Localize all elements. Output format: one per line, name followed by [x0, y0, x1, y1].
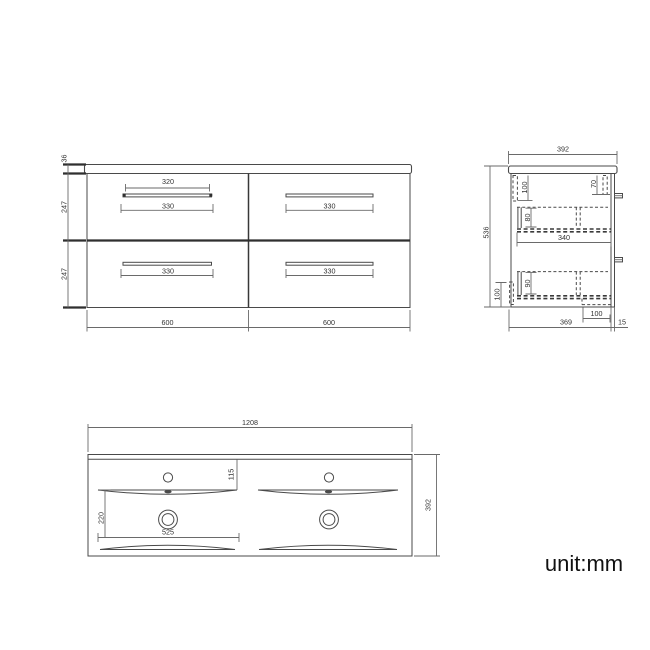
dim-label: 330 — [324, 267, 336, 276]
dim-label: 330 — [162, 267, 174, 276]
dim-basin-front-depth-220: 220 — [97, 490, 111, 538]
dim-label-row2-height: 247 — [60, 268, 69, 280]
dim-handle-330-top-right: 330 — [286, 201, 373, 213]
basin-countertop-outline — [88, 455, 412, 557]
dim-bottom-front-inset-100: 100 — [493, 283, 512, 308]
dim-label: 330 — [162, 201, 174, 210]
dim-handle-330-bottom-left: 330 — [121, 267, 213, 279]
dim-label: 90 — [523, 280, 532, 288]
dim-label: 70 — [589, 180, 598, 188]
basin-top-view: 1208 392 115 — [88, 418, 440, 556]
dim-handle-330-bottom-right: 330 — [286, 267, 373, 279]
dim-label-row1-height: 247 — [60, 201, 69, 213]
dim-label-counter-thickness: 36 — [60, 155, 69, 163]
countertop-side — [509, 166, 618, 174]
tap-hole-right — [324, 473, 333, 482]
tap-hole-left — [163, 473, 172, 482]
dim-tap-to-basin-115: 115 — [227, 459, 238, 490]
dim-label-width-left: 600 — [162, 318, 174, 327]
dim-bottom-widths: 600 600 — [87, 310, 410, 332]
countertop-front — [85, 165, 412, 174]
front-view: 320 330 330 330 330 36 — [60, 155, 412, 332]
dim-label: 1208 — [242, 418, 258, 427]
dim-label-depth: 392 — [557, 145, 569, 154]
dim-label: 115 — [227, 469, 236, 480]
dim-left-heights: 36 247 247 — [60, 155, 87, 308]
dim-label: 100 — [493, 289, 502, 301]
dim-label: 392 — [424, 499, 433, 511]
dim-end-marker — [123, 194, 126, 197]
basin-front-curve-right — [259, 545, 397, 549]
dim-back-recess-100: 100 — [583, 308, 610, 323]
hidden-back-strip-top — [603, 176, 607, 195]
unit-label: unit:mm — [545, 551, 623, 576]
dim-height-536: 536 — [482, 166, 511, 307]
overflow-slot-right — [325, 490, 332, 493]
overflow-slot-left — [164, 490, 171, 493]
dim-total-width-1208: 1208 — [88, 418, 412, 452]
dim-label-width-right: 600 — [323, 318, 335, 327]
dim-label: 330 — [324, 201, 336, 210]
dim-label-body-depth: 369 — [560, 318, 572, 327]
dim-label-rail: 15 — [618, 318, 626, 327]
dim-low-drawer-depth-90: 90 — [523, 273, 537, 294]
wall-bracket-lower — [615, 258, 623, 262]
side-view: 392 536 100 70 — [482, 145, 629, 332]
dim-end-marker — [209, 194, 212, 197]
drain-right — [320, 510, 339, 529]
technical-drawing-page: 320 330 330 330 330 36 — [0, 0, 650, 650]
dim-label: 80 — [523, 214, 532, 222]
dim-label: 340 — [558, 233, 570, 242]
dim-label: 320 — [162, 177, 174, 186]
dim-basin-width-525: 525 — [98, 528, 239, 543]
basin-front-curve-left — [100, 545, 235, 549]
dim-depth-392: 392 — [509, 145, 618, 165]
dim-front-top-inset-100: 100 — [518, 176, 533, 201]
dim-label: 100 — [520, 182, 529, 194]
dim-handle-330-top-left: 330 — [121, 201, 213, 213]
drawer-handle-top-right — [286, 194, 373, 197]
hidden-front-strip-top — [513, 176, 517, 202]
dim-label: 100 — [591, 309, 603, 318]
drain-left — [159, 510, 178, 529]
vanity-dimension-drawing: 320 330 330 330 330 36 — [0, 0, 650, 650]
dim-total-depth-392: 392 — [414, 455, 440, 557]
dim-label: 525 — [162, 528, 174, 537]
wall-bracket-upper — [615, 194, 623, 198]
dim-label-height: 536 — [482, 227, 491, 239]
drawer-handle-top-left — [123, 194, 212, 197]
drawer-handle-bottom-left — [123, 262, 212, 265]
drawer-handle-bottom-right — [286, 262, 373, 265]
dim-mid-drawer-depth-80: 80 — [523, 208, 537, 227]
dim-label: 220 — [97, 512, 106, 524]
dim-drawer-length-340: 340 — [517, 233, 611, 247]
